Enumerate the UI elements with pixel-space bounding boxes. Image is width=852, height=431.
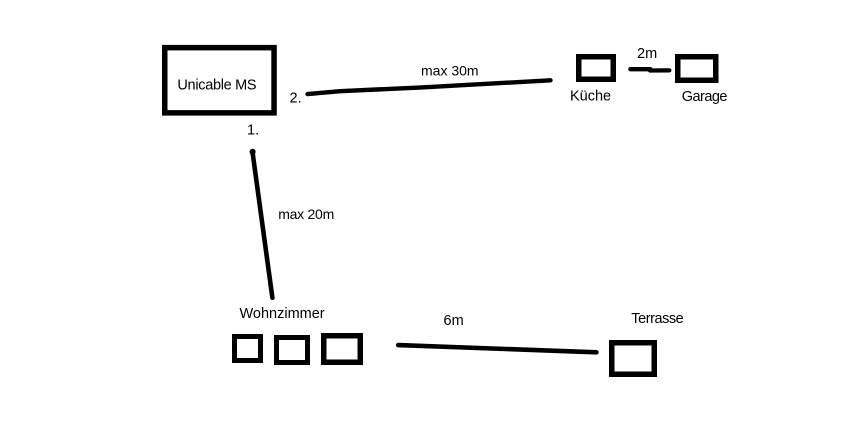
svg-text:Garage: Garage [682,89,728,105]
svg-text:Wohnzimmer: Wohnzimmer [240,306,325,322]
svg-text:Küche: Küche [570,88,611,104]
svg-text:Terrasse: Terrasse [631,311,683,327]
svg-text:Unicable MS: Unicable MS [177,78,256,94]
svg-text:2m: 2m [637,46,657,62]
svg-text:max 20m: max 20m [278,206,334,222]
svg-text:1.: 1. [247,123,259,139]
svg-text:6m: 6m [444,313,464,329]
svg-text:2.: 2. [290,91,302,107]
svg-text:max 30m: max 30m [421,62,479,78]
